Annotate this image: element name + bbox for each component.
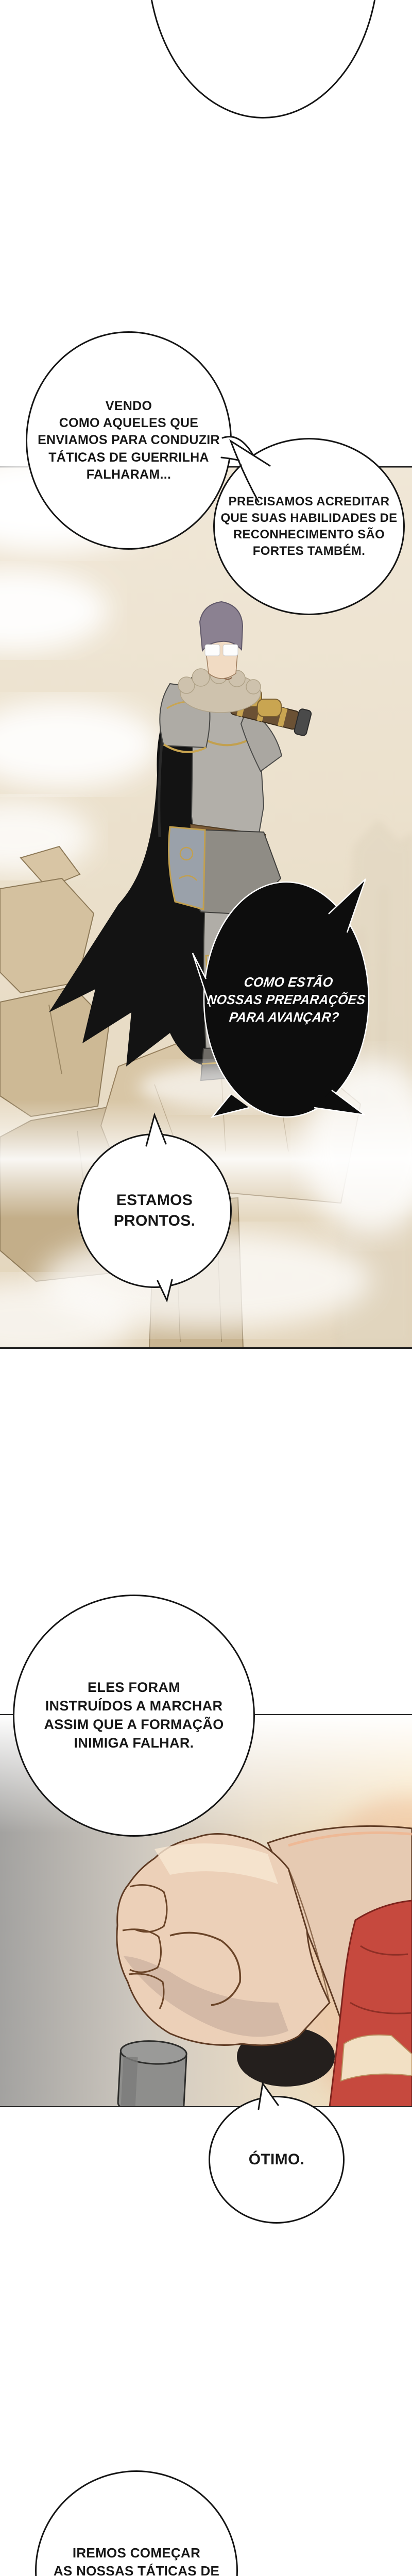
bubble-tail — [149, 1272, 180, 1303]
bubble-text: COMO ESTÃO NOSSAS PREPARAÇÕES PARA AVANÇ… — [180, 870, 392, 1130]
speech-bubble-ready: ESTAMOS PRONTOS. — [77, 1133, 232, 1288]
speech-bubble-instructed: ELES FORAM INSTRUÍDOS A MARCHAR ASSIM QU… — [13, 1595, 255, 1837]
bubble-text: ELES FORAM INSTRUÍDOS A MARCHAR ASSIM QU… — [44, 1679, 224, 1753]
staff-grip — [118, 2040, 187, 2107]
bubble-tail — [228, 438, 277, 504]
speech-bubble-begin: IREMOS COMEÇAR AS NOSSAS TÁTICAS DE GUER… — [35, 2470, 238, 2576]
bubble-tail — [248, 2081, 284, 2119]
panel1-bottom-border — [0, 1347, 412, 1349]
bubble-tail — [139, 1112, 175, 1148]
opening-bubble — [147, 0, 379, 118]
panel2-bottom-border — [0, 2106, 412, 2107]
shout-bubble-preparations: COMO ESTÃO NOSSAS PREPARAÇÕES PARA AVANÇ… — [192, 870, 381, 1130]
bubble-text: ÓTIMO. — [249, 2149, 304, 2170]
speech-bubble-guerrilla-failed: VENDO COMO AQUELES QUE ENVIAMOS PARA CON… — [26, 331, 232, 550]
bubble-text: VENDO COMO AQUELES QUE ENVIAMOS PARA CON… — [38, 398, 220, 483]
bubble-text: IREMOS COMEÇAR AS NOSSAS TÁTICAS DE GUER… — [54, 2544, 219, 2576]
comic-page: VENDO COMO AQUELES QUE ENVIAMOS PARA CON… — [0, 0, 412, 2576]
bubble-text: ESTAMOS PRONTOS. — [114, 1190, 196, 1231]
